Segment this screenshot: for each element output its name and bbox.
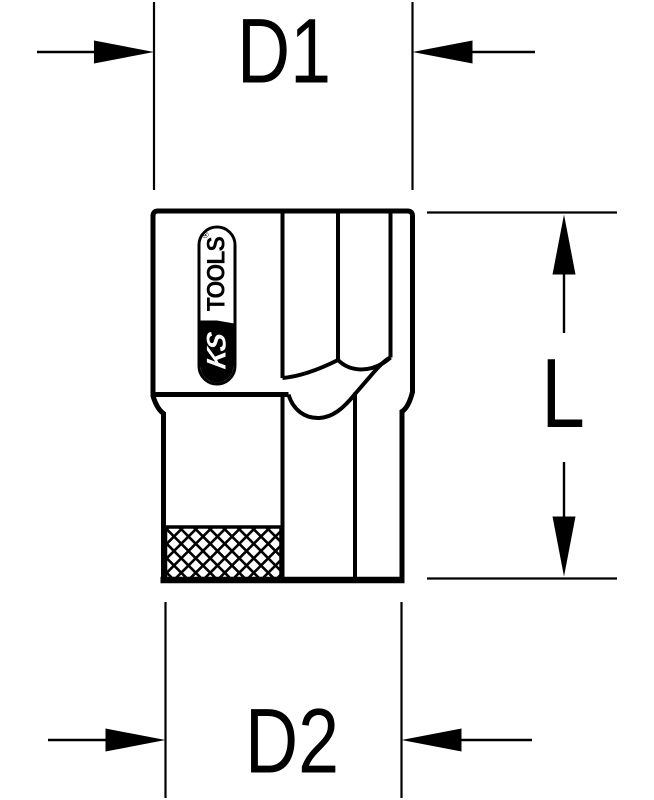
logo-ks-section: KS: [201, 318, 234, 386]
dimension-label-d2: D2: [245, 695, 339, 787]
dimension-label-d1: D1: [237, 5, 331, 97]
dimension-label-l: L: [541, 344, 585, 442]
d2-arrow-left-head: [106, 729, 166, 752]
socket-body: [151, 211, 413, 580]
logo-ks-text: KS: [202, 332, 233, 371]
knurling-crosshatch: [166, 527, 282, 579]
logo-tools-section: TOOLS ®: [201, 229, 234, 321]
d2-arrow-right-head: [402, 729, 462, 752]
shoulder-curves: [283, 358, 391, 419]
hex-face-lines-upper: [283, 211, 391, 378]
hex-face-lines-lower: [283, 393, 356, 579]
socket-technical-drawing: D1 L D2 KS TOOLS ®: [0, 0, 654, 800]
l-arrow-down-head: [553, 517, 576, 577]
d1-arrow-left-head: [94, 41, 154, 64]
d1-arrow-right-head: [413, 41, 473, 64]
l-arrow-up-head: [553, 215, 576, 275]
logo-tools-text: TOOLS: [203, 237, 232, 311]
dimension-l: [427, 213, 617, 579]
registered-trademark-icon: ®: [201, 232, 211, 239]
ks-tools-logo: KS TOOLS ®: [198, 226, 237, 386]
